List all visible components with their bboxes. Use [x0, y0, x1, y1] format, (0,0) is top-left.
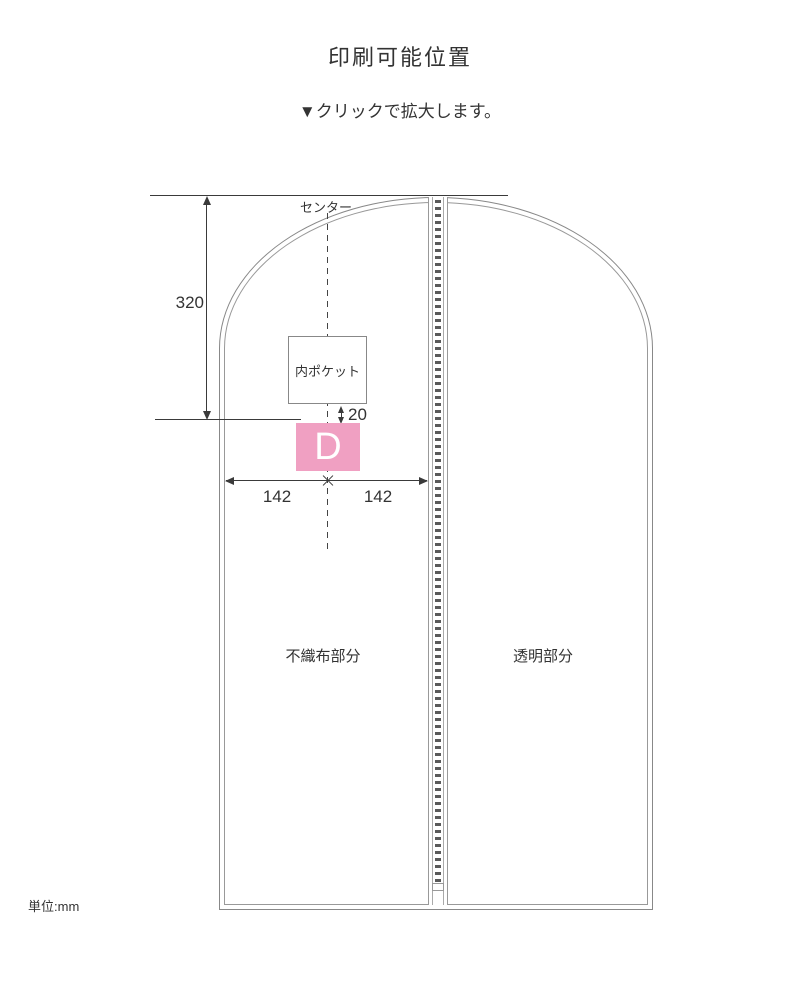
page: 印刷可能位置 ▼クリックで拡大します。 320 センター 内ポケット [0, 0, 800, 1001]
inner-pocket-box: 内ポケット [288, 336, 367, 404]
unit-note: 単位:mm [28, 896, 79, 915]
arrowhead-up-small-icon [338, 406, 344, 413]
dimension-value-320: 320 [160, 293, 204, 313]
zipper-stop [432, 883, 444, 891]
click-to-enlarge-note: ▼クリックで拡大します。 [0, 97, 800, 122]
arrowhead-left-icon [225, 477, 234, 485]
dimension-line-320 [206, 199, 207, 417]
center-line-label: センター [300, 197, 352, 216]
arrowhead-up-icon [203, 196, 211, 205]
zipper-tape-line-left [432, 197, 433, 905]
arrowhead-down-icon [203, 411, 211, 420]
dimension-value-142-right: 142 [350, 487, 406, 507]
nonwoven-panel-label: 不織布部分 [253, 645, 393, 666]
arrowhead-right-icon [419, 477, 428, 485]
zipper [428, 197, 448, 905]
dimension-value-142-left: 142 [249, 487, 305, 507]
transparent-panel-label: 透明部分 [483, 645, 603, 666]
inner-pocket-label: 内ポケット [295, 361, 360, 380]
print-area-d-label: D [314, 426, 341, 469]
page-title: 印刷可能位置 [0, 40, 800, 72]
print-area-d: D [296, 423, 360, 471]
print-area-top-reference-line [155, 419, 301, 420]
garment-cover-diagram[interactable]: 320 センター 内ポケット 20 D 142 142 不織布部分 透明部分 [0, 150, 800, 950]
zipper-teeth-track [435, 200, 441, 883]
zipper-tape-line-right [443, 197, 444, 905]
dimension-value-20: 20 [348, 405, 367, 425]
